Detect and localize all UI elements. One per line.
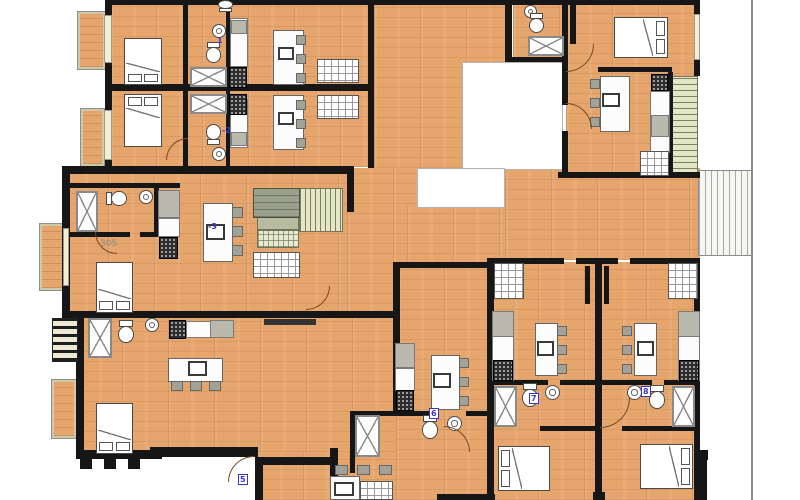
unit2-island-sink	[278, 112, 294, 125]
stair-flight-east	[672, 76, 698, 176]
wall	[398, 262, 490, 268]
wall	[140, 232, 158, 237]
window-nw-2	[104, 110, 112, 160]
window-nw-1	[104, 15, 112, 63]
unit8-wardrobe	[668, 263, 698, 299]
unit8-cabinets	[678, 311, 700, 337]
unit6-counter	[395, 368, 415, 391]
wall	[183, 5, 188, 85]
pillow	[501, 450, 510, 467]
unit7-stools-stool-icon-1	[557, 326, 567, 336]
pillow	[116, 301, 130, 310]
unit6-stools-stool-icon-3	[459, 396, 469, 406]
unit5-island-2-sink	[334, 482, 354, 496]
wall	[466, 411, 488, 416]
unit5-toilet-icon	[117, 320, 135, 343]
unit6-island-sink	[433, 373, 451, 388]
unit7-stove-icon	[493, 360, 513, 381]
unit305-shower-icon	[76, 191, 98, 232]
blanket-fold	[126, 108, 161, 118]
unit305-stools-stool-icon-2	[232, 226, 243, 237]
wall	[540, 426, 600, 431]
terrace-deck	[698, 170, 752, 256]
wall	[62, 166, 354, 174]
wall	[595, 264, 602, 500]
wall	[368, 5, 374, 168]
wall	[128, 459, 140, 469]
unit5-fridge	[210, 320, 234, 338]
unit1-toilet-icon	[205, 42, 222, 63]
unit1-bed-icon	[124, 38, 162, 85]
unit5-stove-icon	[169, 320, 186, 339]
wall	[104, 459, 116, 469]
window-east	[694, 14, 700, 60]
pillow	[128, 74, 142, 82]
unit-label-7: 7	[529, 393, 539, 404]
unit2-stools-stool-icon-3	[296, 138, 306, 148]
unit4-shower-icon	[528, 36, 564, 56]
pillow	[501, 470, 510, 487]
unit2-fridge	[231, 132, 247, 146]
blanket-fold	[669, 446, 679, 487]
balcony-nw-2	[81, 109, 104, 166]
unit5-bed-icon	[96, 403, 133, 454]
wall	[558, 172, 700, 178]
bowl	[111, 191, 126, 206]
unit8-stove-icon	[679, 360, 699, 381]
wall	[263, 457, 333, 465]
unit5-counter	[186, 321, 211, 338]
bowl	[422, 421, 438, 438]
unit4-washer	[640, 151, 669, 176]
void-lightwell	[462, 62, 563, 170]
unit305-sink-icon	[139, 190, 153, 204]
unit5-stools-2-stool-icon-2	[357, 465, 370, 475]
unit7-stools-stool-icon-3	[557, 364, 567, 374]
unit8-bed-icon	[640, 444, 693, 489]
wall	[507, 57, 565, 62]
balcony-west-1	[40, 224, 64, 290]
wall	[80, 459, 92, 469]
bowl	[118, 326, 134, 343]
wall	[505, 0, 512, 62]
pillow	[128, 97, 142, 106]
unit7-shower-icon	[494, 386, 517, 427]
unit1-fridge	[231, 20, 247, 34]
unit1-stools-stool-icon-3	[296, 73, 306, 83]
unit305-bed-icon	[96, 262, 133, 313]
unit7-stools-stool-icon-2	[557, 345, 567, 355]
unit6-stove-icon	[396, 390, 414, 411]
unit8-stools-stool-icon-2	[622, 345, 632, 355]
unit5-stools-2-stool-icon-3	[379, 465, 392, 475]
unit7-cabinets	[492, 311, 514, 337]
unit-label-5: 5	[238, 474, 248, 485]
unit5-stools-stool-icon-2	[190, 381, 202, 391]
pillow	[116, 442, 130, 451]
unit5-stools-2-stool-icon-1	[335, 465, 348, 475]
unit-label-305: 305	[100, 240, 117, 249]
unit2-shower-icon	[190, 94, 227, 114]
balcony-west-2	[52, 380, 76, 438]
wall	[110, 0, 507, 5]
unit2-sink-icon	[212, 147, 226, 161]
floor-corridor-mid	[407, 206, 507, 264]
unit305-counter	[158, 218, 180, 237]
pillow	[99, 442, 113, 451]
stair-hatch-center	[257, 230, 299, 248]
blanket-fold	[512, 448, 522, 489]
pillow	[656, 39, 665, 55]
unit2-stools-stool-icon-1	[296, 100, 306, 110]
unit7-island-sink	[537, 341, 554, 356]
wall	[570, 0, 576, 44]
wall	[562, 131, 568, 174]
pillow	[681, 448, 690, 465]
unit8-stools-stool-icon-3	[622, 364, 632, 374]
unit7-bed-icon	[498, 446, 550, 491]
bowl	[206, 124, 221, 139]
floor-corridor-east	[505, 168, 700, 260]
floor-plan-canvas: 1-2-33055678	[0, 0, 800, 500]
stair-flight-center	[299, 188, 343, 232]
unit5-washer	[360, 481, 393, 500]
wall	[150, 447, 258, 457]
pillow	[656, 21, 665, 37]
unit4-stools-stool-icon-1	[590, 79, 600, 89]
balcony-nw-1	[78, 12, 105, 69]
unit4-fridge	[651, 115, 669, 137]
blanket-fold	[98, 430, 132, 440]
unit1-island-sink	[278, 47, 294, 60]
wall	[255, 457, 263, 500]
unit6-shower-icon	[355, 415, 380, 457]
unit8-stools-stool-icon-1	[622, 326, 632, 336]
wall	[602, 380, 652, 385]
unit305-toilet-icon	[106, 190, 127, 207]
unit2-stove-icon	[229, 94, 247, 115]
wall	[585, 266, 590, 304]
unit4-stools-stool-icon-2	[590, 98, 600, 108]
pillow	[681, 468, 690, 485]
property-line	[751, 0, 753, 500]
unit4-stove-icon	[651, 74, 668, 91]
unit5-stools-stool-icon-1	[171, 381, 183, 391]
unit2-bed-icon	[124, 94, 162, 147]
bowl	[206, 47, 221, 62]
unit8-shower-icon	[672, 386, 695, 427]
unit-label-6: 6	[429, 408, 439, 419]
unit5-island-sink	[188, 361, 207, 376]
unit6-stools-stool-icon-2	[459, 377, 469, 387]
unit6-cabinets	[395, 343, 415, 368]
unit305-stove-icon	[159, 237, 178, 259]
wall	[507, 0, 700, 5]
unit2-stools-stool-icon-2	[296, 119, 306, 129]
window-west	[63, 228, 69, 286]
unit-label--3: -3	[208, 222, 217, 231]
pillow	[99, 301, 113, 310]
tank	[207, 139, 220, 145]
void-shaft	[417, 168, 505, 208]
unit4-bed-icon	[614, 17, 668, 58]
wall	[593, 492, 605, 500]
unit305-stools-stool-icon-1	[232, 207, 243, 218]
wall	[700, 455, 707, 500]
wall	[560, 380, 595, 385]
unit305-dining-table	[253, 252, 300, 278]
unit5-sink-icon	[145, 318, 159, 332]
unit-label-1: 1	[217, 36, 223, 45]
unit-label-8: 8	[641, 386, 651, 397]
unit1-dining-table	[317, 59, 359, 83]
unit1-stools-stool-icon-1	[296, 35, 306, 45]
unit1-stools-stool-icon-2	[296, 54, 306, 64]
unit2-toilet-icon	[205, 124, 222, 145]
left-louver-vent-icon	[52, 318, 78, 362]
bowl	[529, 18, 544, 32]
unit4-toilet-icon	[528, 13, 545, 33]
wall	[437, 494, 495, 500]
top-edge-toilet-icon	[217, 0, 234, 12]
unit1-shower-icon	[190, 67, 227, 87]
pillow	[144, 97, 158, 106]
bowl	[649, 391, 665, 408]
bowl	[218, 0, 233, 9]
unit-label--2: -2	[222, 126, 231, 135]
unit305-stools-stool-icon-3	[232, 245, 243, 256]
tank	[219, 8, 232, 12]
unit8-toilet-icon	[648, 385, 666, 409]
unit5-tv-console	[264, 319, 316, 325]
wall	[347, 166, 354, 212]
unit2-dining-table	[317, 95, 359, 119]
unit305-media-cabinet	[253, 188, 300, 218]
unit1-stove-icon	[229, 67, 247, 88]
unit7-sink-icon	[545, 385, 560, 400]
wall	[62, 183, 180, 188]
blanket-fold	[643, 19, 653, 56]
blanket-fold	[126, 63, 161, 72]
unit6-stools-stool-icon-1	[459, 358, 469, 368]
unit7-wardrobe	[494, 263, 524, 299]
wall	[598, 67, 672, 72]
unit8-island-sink	[637, 341, 654, 356]
unit5-stools-stool-icon-3	[209, 381, 221, 391]
pillow	[144, 74, 158, 82]
unit4-island-sink	[602, 93, 620, 107]
unit305-cabinets	[158, 190, 180, 218]
wall	[604, 266, 609, 304]
blanket-fold	[98, 289, 132, 299]
unit5-shower-icon	[88, 318, 112, 358]
